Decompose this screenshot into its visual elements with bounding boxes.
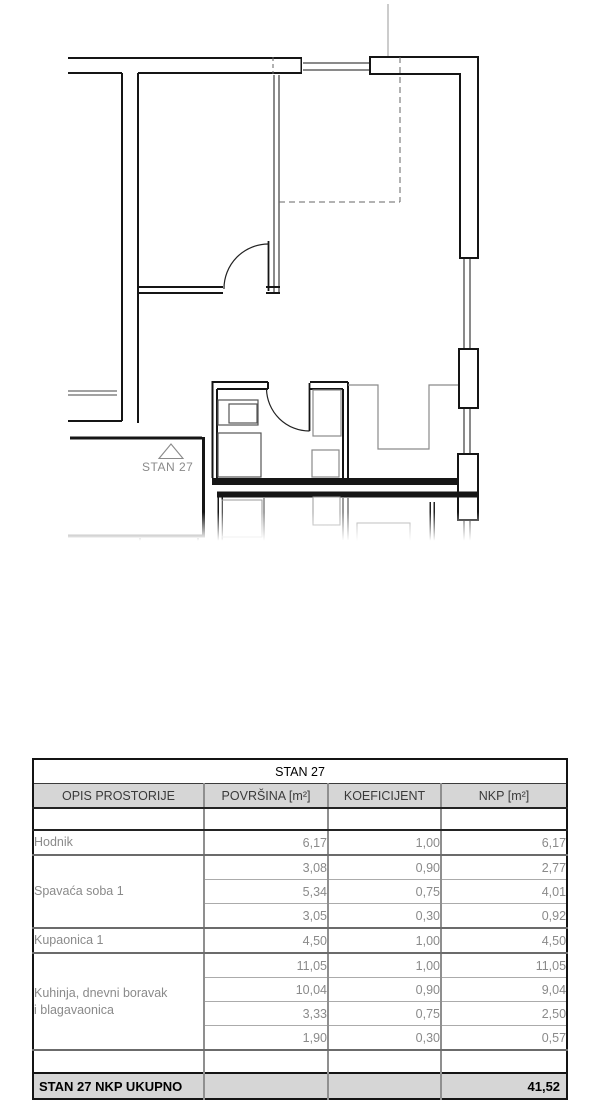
nkp-value: 4,50 [441, 928, 567, 953]
total-label: STAN 27 NKP UKUPNO [33, 1073, 204, 1099]
nkp-value: 4,01 [441, 880, 567, 904]
table-row: Kuhinja, dnevni boravak i blagavaonica 1… [33, 953, 567, 978]
table-row: Kupaonica 1 4,50 1,00 4,50 [33, 928, 567, 953]
spacer-cell [441, 1050, 567, 1073]
spacer-cell [204, 1050, 328, 1073]
neighbour-window [68, 391, 117, 395]
table-header-row: OPIS PROSTORIJE POVRŠINA [m²] KOEFICIJEN… [33, 784, 567, 809]
povrsina-value: 10,04 [204, 978, 328, 1002]
spacer-cell [441, 808, 567, 830]
spacer-cell [328, 1050, 441, 1073]
nkp-value: 11,05 [441, 953, 567, 978]
koeficijent-value: 1,00 [328, 928, 441, 953]
koeficijent-value: 0,30 [328, 904, 441, 929]
top-wall [68, 57, 302, 74]
povrsina-value: 4,50 [204, 928, 328, 953]
spacer-cell [204, 808, 328, 830]
spacer-cell [33, 1050, 204, 1073]
koeficijent-value: 0,90 [328, 855, 441, 880]
spacer-cell [33, 808, 204, 830]
bathroom-door [267, 383, 310, 431]
kitchen-counter [348, 385, 458, 449]
table-row: Spavaća soba 1 3,08 0,90 2,77 [33, 855, 567, 880]
total-empty-cell [328, 1073, 441, 1099]
povrsina-value: 1,90 [204, 1026, 328, 1051]
nkp-value: 6,17 [441, 830, 567, 855]
nkp-value: 0,57 [441, 1026, 567, 1051]
floor-plan: STAN 27 [0, 0, 608, 560]
left-wall [68, 73, 138, 423]
floor-plan-drawing [0, 0, 608, 560]
table-total-row: STAN 27 NKP UKUPNO 41,52 [33, 1073, 567, 1099]
room-label: Spavaća soba 1 [33, 855, 204, 928]
koeficijent-value: 0,75 [328, 880, 441, 904]
sink-icon [312, 450, 339, 477]
toilet-icon [313, 390, 341, 436]
koeficijent-value: 0,75 [328, 1002, 441, 1026]
table-title-row: STAN 27 [33, 759, 567, 784]
bathroom-walls [212, 381, 348, 478]
entrance-triangle-icon [159, 444, 183, 459]
spacer-row-top [33, 808, 567, 830]
povrsina-value: 5,34 [204, 880, 328, 904]
shower-icon [218, 433, 261, 477]
header-povrsina: POVRŠINA [m²] [204, 784, 328, 809]
total-empty-cell [204, 1073, 328, 1099]
povrsina-value: 11,05 [204, 953, 328, 978]
header-koeficijent: KOEFICIJENT [328, 784, 441, 809]
top-window [303, 63, 370, 70]
bedroom-door [224, 241, 269, 291]
povrsina-value: 3,08 [204, 855, 328, 880]
room-label: Hodnik [33, 830, 204, 855]
koeficijent-value: 0,30 [328, 1026, 441, 1051]
header-opis: OPIS PROSTORIJE [33, 784, 204, 809]
povrsina-value: 3,05 [204, 904, 328, 929]
plan-fade-overlay [0, 512, 500, 548]
bedroom-walls [138, 75, 280, 293]
koeficijent-value: 1,00 [328, 953, 441, 978]
plan-apartment-label: STAN 27 [142, 460, 212, 474]
area-table: STAN 27 OPIS PROSTORIJE POVRŠINA [m²] KO… [32, 758, 568, 1100]
wall-pillar-lower [458, 454, 478, 520]
table-row: Hodnik 6,17 1,00 6,17 [33, 830, 567, 855]
povrsina-value: 3,33 [204, 1002, 328, 1026]
washing-machine-icon [218, 400, 258, 425]
wall-pillar-upper [459, 349, 478, 408]
nkp-value: 0,92 [441, 904, 567, 929]
header-nkp: NKP [m²] [441, 784, 567, 809]
total-nkp-value: 41,52 [441, 1073, 567, 1099]
spacer-cell [328, 808, 441, 830]
spacer-row-bottom [33, 1050, 567, 1073]
nkp-value: 2,50 [441, 1002, 567, 1026]
koeficijent-value: 0,90 [328, 978, 441, 1002]
room-label: Kuhinja, dnevni boravak i blagavaonica [33, 953, 204, 1050]
page: STAN 27 STAN 27 OPIS PROSTORIJE POVRŠINA… [0, 0, 608, 1118]
corner-wall [370, 57, 478, 258]
nkp-value: 2,77 [441, 855, 567, 880]
dashed-outline [279, 57, 400, 202]
room-label: Kupaonica 1 [33, 928, 204, 953]
povrsina-value: 6,17 [204, 830, 328, 855]
nkp-value: 9,04 [441, 978, 567, 1002]
table-title: STAN 27 [33, 759, 567, 784]
koeficijent-value: 1,00 [328, 830, 441, 855]
